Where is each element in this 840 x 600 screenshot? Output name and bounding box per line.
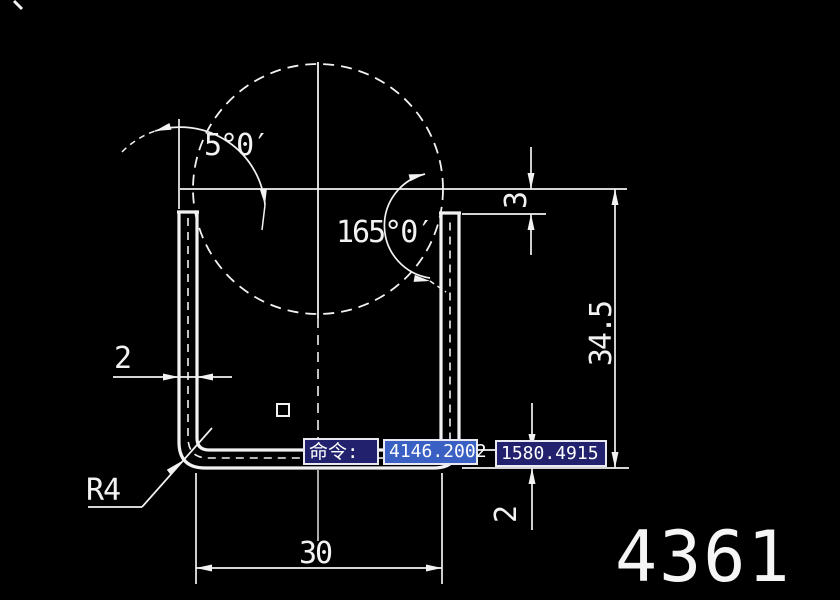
grip-handle[interactable] <box>277 404 289 416</box>
angle-label-right: 165°0′ <box>336 217 432 249</box>
drawing-linework <box>0 0 840 600</box>
radius-label: R4 <box>86 475 120 507</box>
coordinate-y-readout: 1580.4915 <box>495 440 607 467</box>
dim-label-30: 30 <box>299 538 331 570</box>
dim-label-3: 3 <box>501 181 533 221</box>
angle-arc-5deg-tail <box>122 131 155 152</box>
dim-label-34-5: 34.5 <box>586 294 618 374</box>
cad-drawing-canvas[interactable]: 5°0′ 165°0′ 3 34.5 2 2 30 R4 4361 命令: 41… <box>0 0 840 600</box>
command-prompt-box[interactable]: 命令: <box>303 438 379 465</box>
dimension-arrowheads <box>155 123 619 572</box>
angle-arc-165deg-stub <box>430 281 446 292</box>
angle-arc-5deg-stub <box>262 205 265 230</box>
profile-centerline-dashed <box>188 218 450 458</box>
cursor-mark <box>14 1 22 9</box>
angle-label-left: 5°0′ <box>204 130 268 162</box>
dim-label-2-bottom: 2 <box>491 499 523 531</box>
coordinate-x-readout: 4146.2002 <box>383 439 478 465</box>
sheet-number: 4361 <box>615 522 792 592</box>
dim-label-2-wall: 2 <box>114 343 130 375</box>
